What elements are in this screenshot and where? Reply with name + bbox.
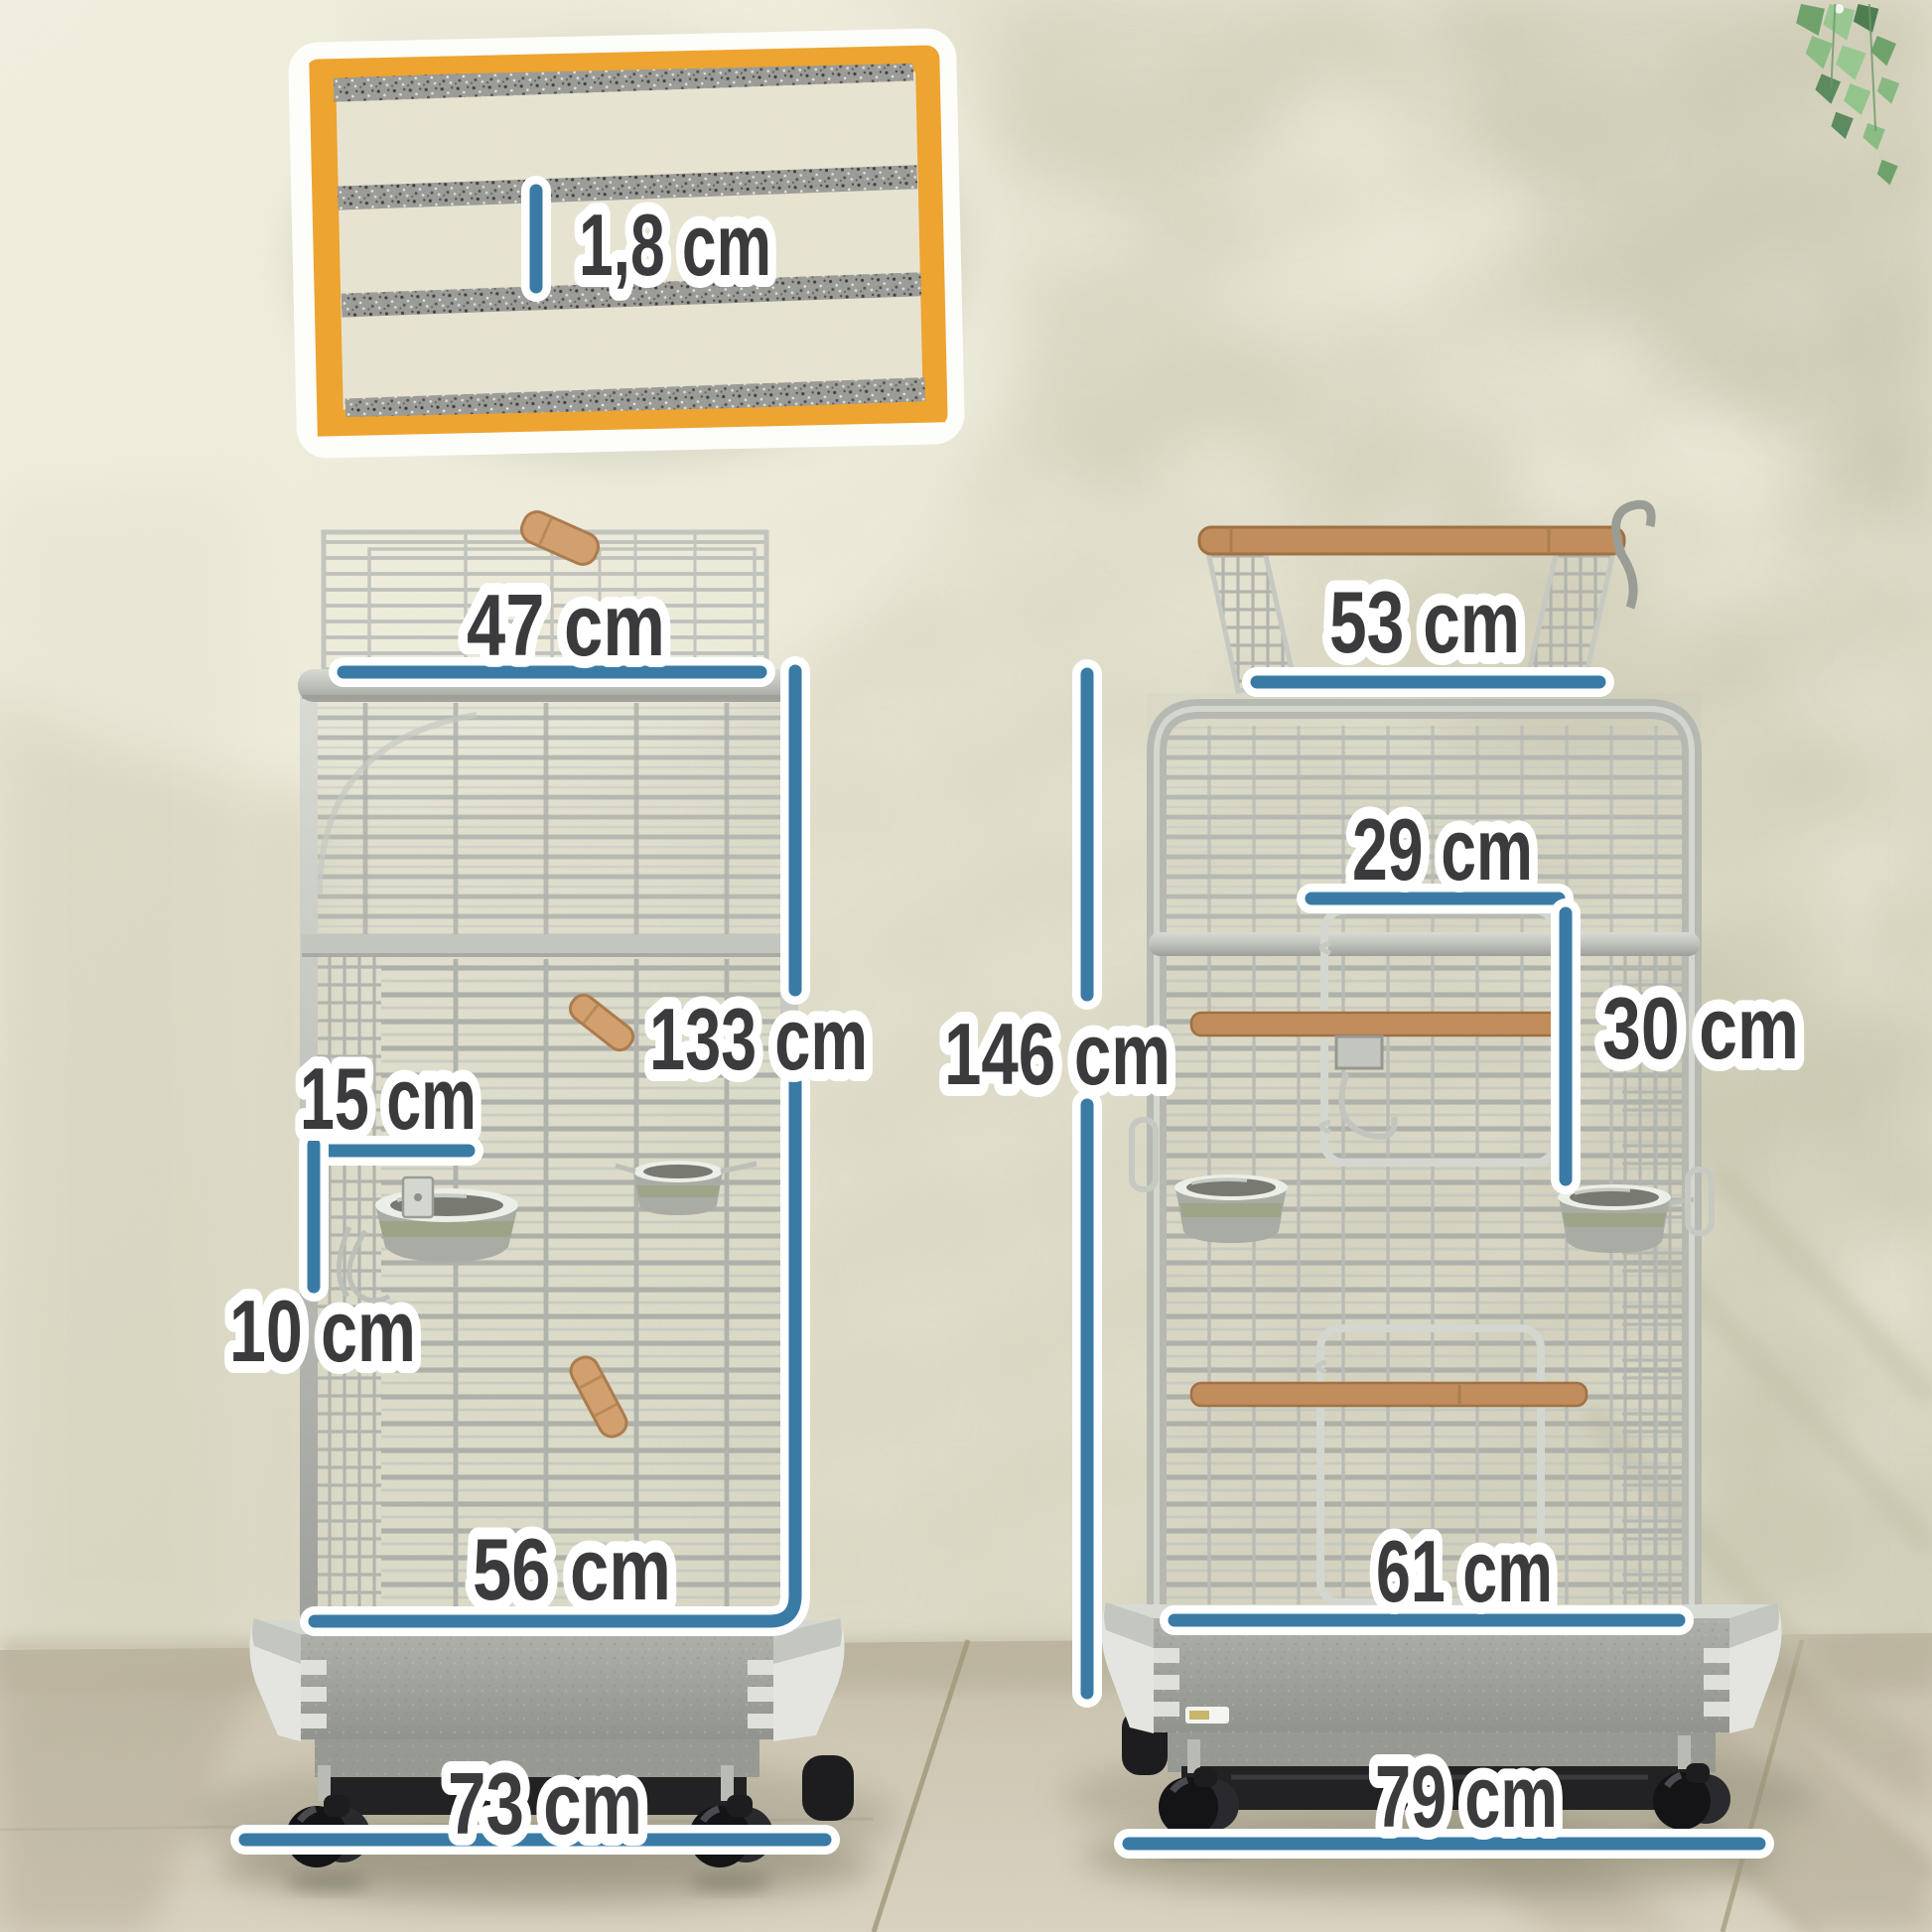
svg-text:10 cm: 10 cm [229, 1282, 416, 1380]
svg-text:53 cm: 53 cm [1329, 573, 1520, 671]
svg-text:146 cm: 146 cm [944, 1005, 1171, 1103]
svg-text:1,8 cm: 1,8 cm [579, 196, 771, 294]
svg-text:15 cm: 15 cm [300, 1049, 477, 1148]
svg-text:133 cm: 133 cm [649, 990, 868, 1088]
svg-text:56 cm: 56 cm [473, 1520, 671, 1618]
svg-text:79 cm: 79 cm [1375, 1747, 1558, 1846]
svg-text:30 cm: 30 cm [1602, 979, 1799, 1077]
svg-text:29 cm: 29 cm [1352, 800, 1533, 898]
svg-text:61 cm: 61 cm [1376, 1522, 1553, 1620]
svg-text:73 cm: 73 cm [448, 1754, 642, 1853]
svg-text:47 cm: 47 cm [467, 576, 665, 674]
